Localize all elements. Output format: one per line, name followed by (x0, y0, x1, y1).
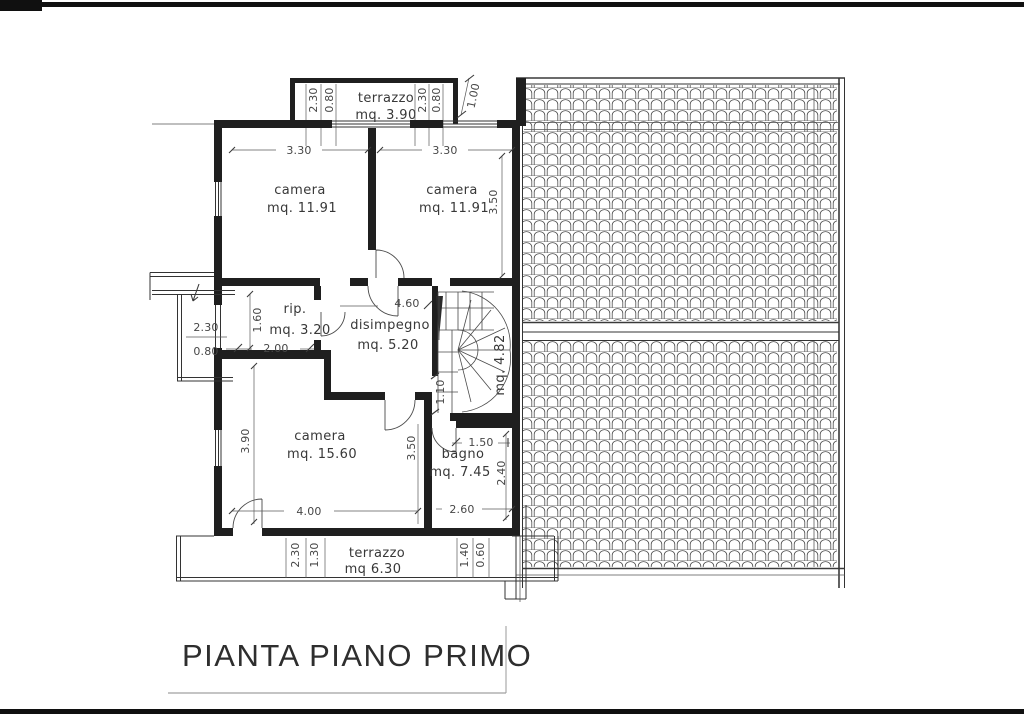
dim-bagno-passage: 1.50 (468, 436, 493, 449)
terrazzo-top: terrazzo mq. 3.90 2.30 0.80 2.30 0.80 1.… (290, 75, 483, 146)
scan-edge-bottom (0, 709, 1024, 714)
dim-balcony-w: 2.30 (193, 321, 218, 334)
dim-terrazzo-top-right-w: 2.30 (416, 87, 429, 112)
room-label-camera-tl: camera (274, 183, 326, 198)
roof-hatch-lower (523, 341, 837, 567)
dim-terrazzo-top-right-d: 0.80 (430, 87, 443, 112)
room-area-bagno: mq. 7.45 (429, 465, 490, 480)
door-swings (233, 250, 456, 528)
room-label-terrazzo-bottom: terrazzo (349, 546, 405, 561)
roof-area (505, 78, 845, 599)
dim-rip-w: 2.00 (263, 342, 288, 355)
roof-hatch-upper (523, 85, 837, 321)
dim-terrazzo-bottom-a: 2.30 (289, 542, 302, 567)
dim-terrazzo-top-left-w: 2.30 (307, 87, 320, 112)
dim-rip-h: 1.60 (251, 307, 264, 332)
room-area-scala: mq. 4.82 (493, 334, 508, 395)
room-area-rip: mq. 3.20 (269, 323, 330, 338)
dim-camera-b-w: 4.00 (296, 505, 321, 518)
scan-edge-top (0, 2, 1024, 7)
dim-terrazzo-top-left-d: 0.80 (323, 87, 336, 112)
dim-camera-b-div: 3.50 (405, 435, 418, 460)
plan-title: PIANTA PIANO PRIMO (182, 638, 532, 673)
room-label-disimpegno: disimpegno (350, 318, 430, 333)
room-label-camera-b: camera (294, 429, 346, 444)
room-area-terrazzo-bottom: mq 6.30 (345, 562, 402, 577)
room-area-disimpegno: mq. 5.20 (357, 338, 418, 353)
dim-bagno-w: 2.60 (449, 503, 474, 516)
dim-camera-tr-w: 3.30 (432, 144, 457, 157)
title-block: PIANTA PIANO PRIMO (168, 626, 532, 693)
dim-disimpegno-w: 4.60 (394, 297, 419, 310)
dim-bagno-h: 2.40 (495, 460, 508, 485)
room-area-camera-b: mq. 15.60 (287, 447, 357, 462)
floorplan-page: terrazzo mq. 3.90 2.30 0.80 2.30 0.80 1.… (0, 0, 1024, 724)
dim-balcony-d: 0.80 (193, 345, 218, 358)
room-label-terrazzo-top: terrazzo (358, 91, 414, 106)
room-area-camera-tl: mq. 11.91 (267, 201, 337, 216)
room-label-rip: rip. (284, 302, 307, 317)
floorplan-drawing: terrazzo mq. 3.90 2.30 0.80 2.30 0.80 1.… (0, 0, 1024, 724)
balcony-left: 2.30 0.80 (150, 273, 235, 382)
dim-camera-tr-h: 3.50 (487, 189, 500, 214)
dim-terrazzo-bottom-c: 1.40 (458, 542, 471, 567)
dim-terrazzo-bottom-b: 1.30 (308, 542, 321, 567)
balcony-dimension-arrow (191, 284, 199, 301)
scan-blot-topleft (0, 0, 42, 11)
dim-camera-b-h: 3.90 (239, 428, 252, 453)
dim-terrazzo-bottom-d: 0.60 (474, 542, 487, 567)
room-area-camera-tr: mq. 11.91 (419, 201, 489, 216)
dim-camera-tl-w: 3.30 (286, 144, 311, 157)
room-label-camera-tr: camera (426, 183, 478, 198)
room-label-bagno: bagno (442, 447, 485, 462)
